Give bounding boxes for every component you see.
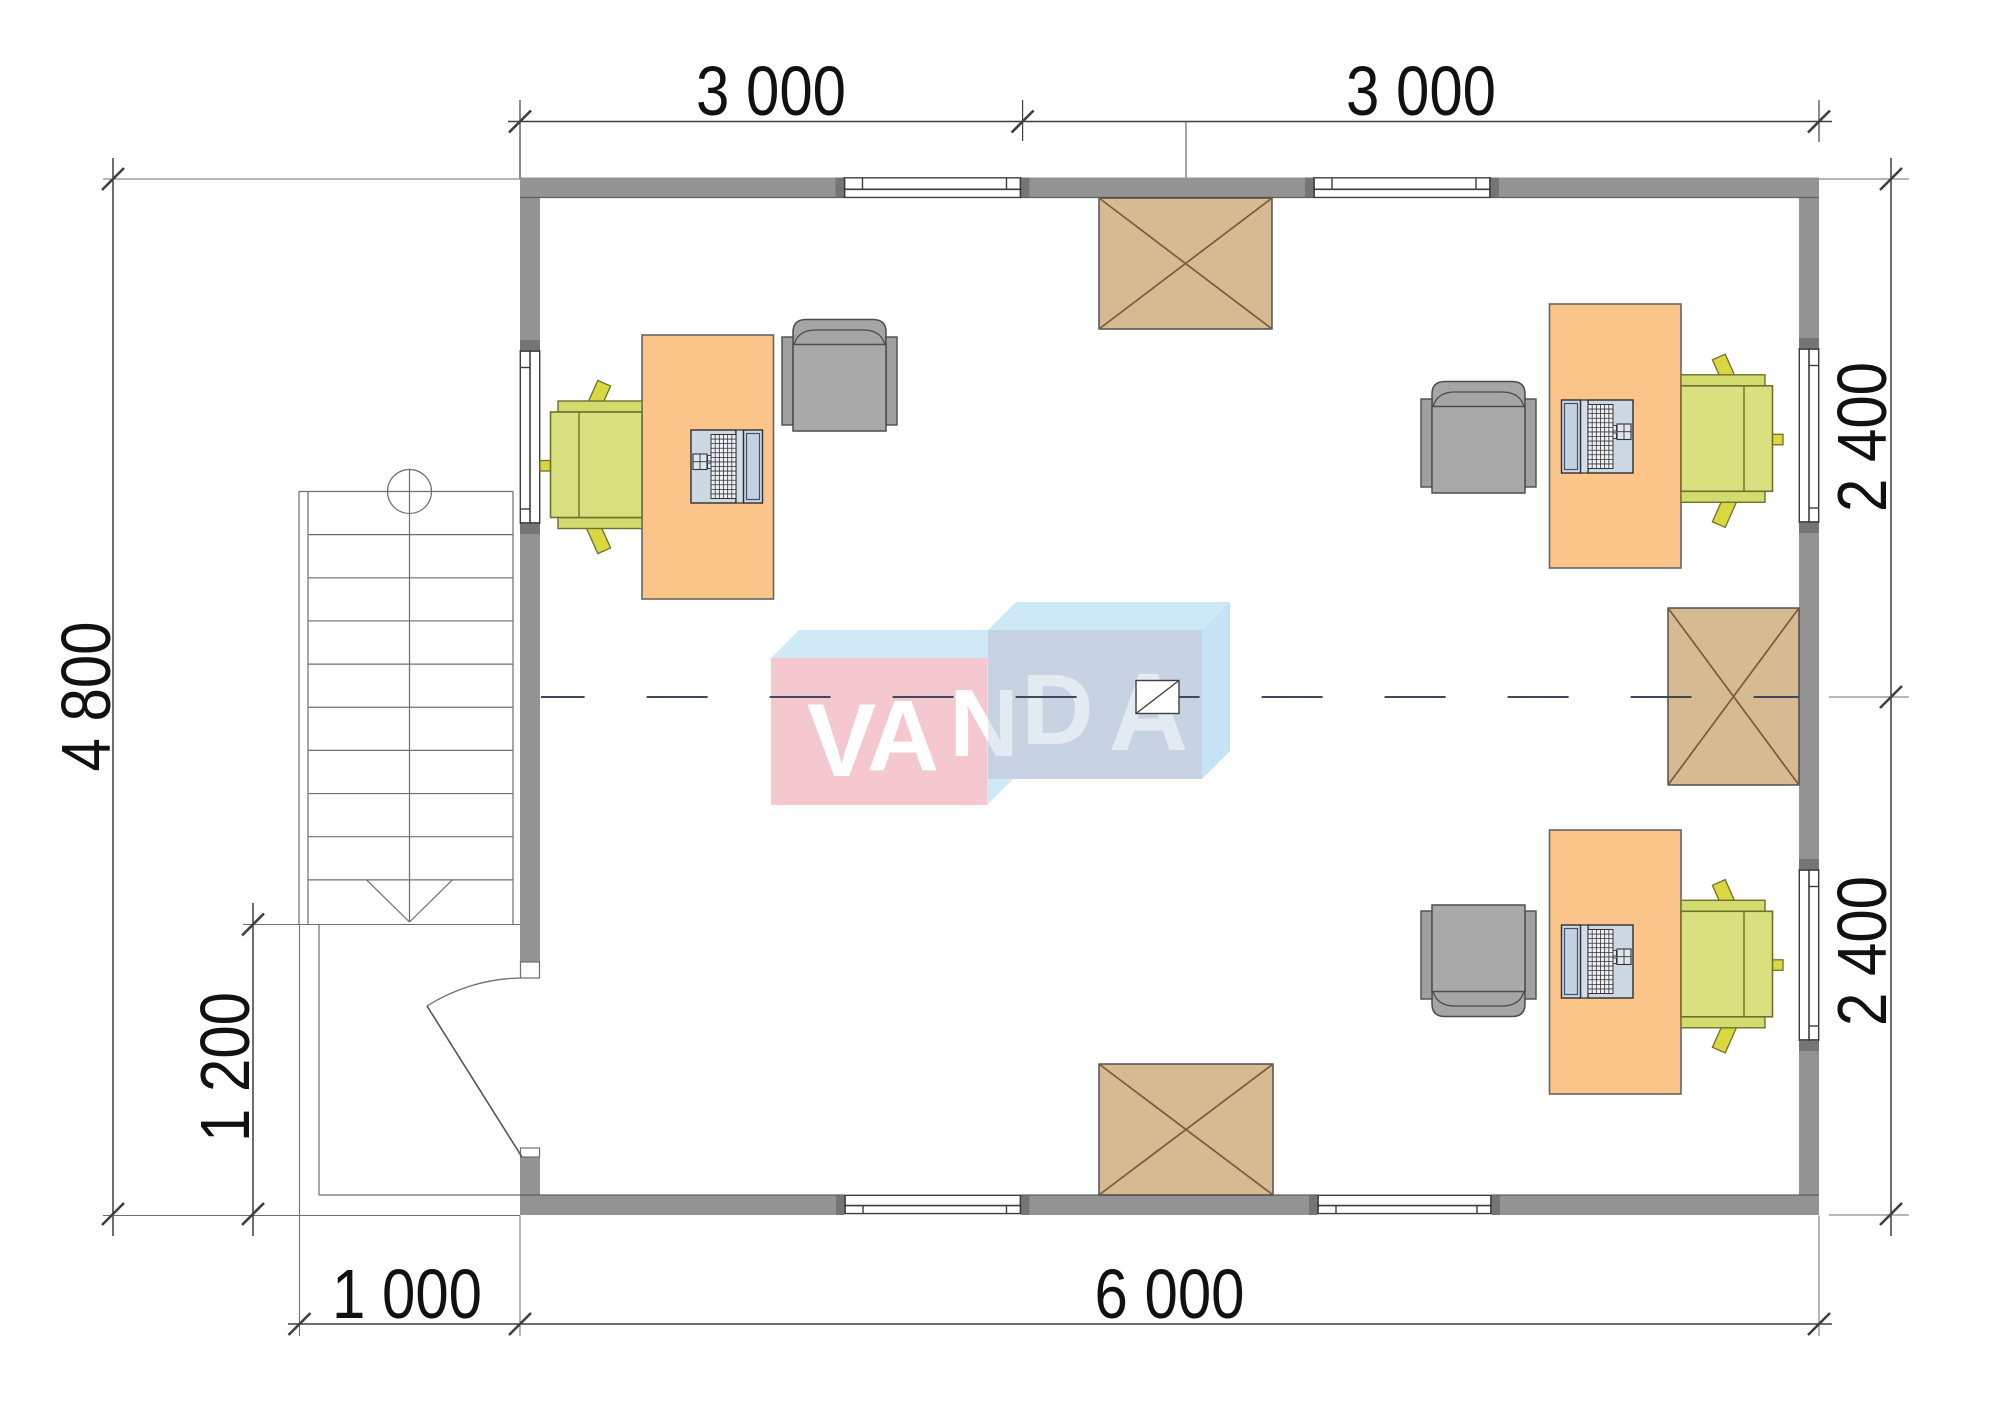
svg-text:1 000: 1 000 <box>332 1255 482 1333</box>
svg-text:V: V <box>807 683 876 799</box>
svg-text:2 400: 2 400 <box>1823 362 1901 512</box>
svg-text:6 000: 6 000 <box>1095 1255 1245 1333</box>
svg-text:2 400: 2 400 <box>1823 876 1901 1026</box>
svg-text:4 800: 4 800 <box>47 622 125 772</box>
svg-text:3 000: 3 000 <box>1346 52 1496 130</box>
svg-text:3 000: 3 000 <box>696 52 846 130</box>
svg-text:1 200: 1 200 <box>186 992 264 1142</box>
svg-text:D: D <box>1021 654 1093 766</box>
